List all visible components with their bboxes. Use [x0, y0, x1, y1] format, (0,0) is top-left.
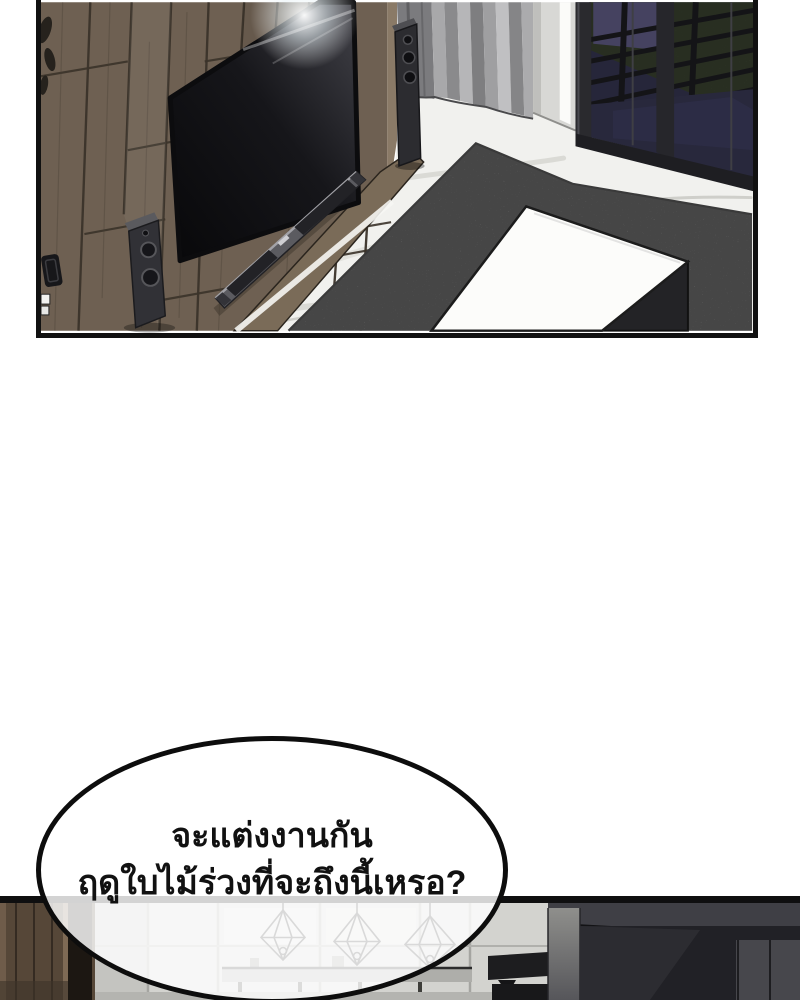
dialogue-line-1: จะแต่งงานกัน — [41, 813, 503, 860]
wall-pillar — [533, 2, 575, 130]
kitchen-dark-wall — [548, 903, 800, 1000]
range-hood — [488, 952, 554, 1000]
living-room-panel-art — [41, 0, 753, 333]
comic-page: จะแต่งงานกัน ฤดูใบไม้ร่วงที่จะถึงนี้เหรอ… — [0, 0, 800, 1000]
living-room-panel — [36, 0, 758, 338]
wall-outlet — [41, 294, 50, 315]
dialogue-line-2: ฤดูใบไม้ร่วงที่จะถึงนี้เหรอ? — [41, 860, 503, 907]
dialogue-text: จะแต่งงานกัน ฤดูใบไม้ร่วงที่จะถึงนี้เหรอ… — [41, 813, 503, 907]
speech-bubble: จะแต่งงานกัน ฤดูใบไม้ร่วงที่จะถึงนี้เหรอ… — [36, 736, 508, 1000]
